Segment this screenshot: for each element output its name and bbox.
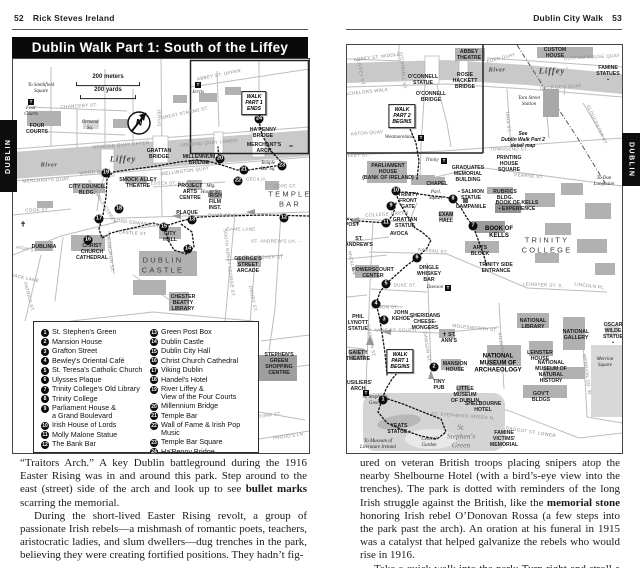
body-paragraph: “Traitors Arch.” A key Dublin battlegrou… [20,457,307,510]
legend-number-icon: 18 [150,376,158,384]
legend-number-icon: 6 [41,376,49,384]
legend-number-icon: 8 [41,395,49,403]
legend-number-icon: 12 [41,441,49,449]
body-paragraph: Take a quick walk into the park: Turn ri… [360,563,620,568]
legend-item-15: 15Dublin City Hall [150,347,254,356]
legend-label: Green Post Box [161,328,212,336]
legend-label: Ulysses Plaque [52,376,102,384]
legend-column-1: 1St. Stephen's Green2Mansion House3Graft… [41,328,145,448]
legend-label: Trinity College's Old Library [52,385,140,393]
legend-column-2: 13Green Post Box14Dublin Castle15Dublin … [150,328,254,448]
legend-label: The Bank Bar [52,440,96,448]
route-marker-1: 1 [379,396,388,405]
legend-item-10: 10Irish House of Lords [41,421,145,430]
body-paragraph: During the short-lived Easter Rising rev… [20,510,307,563]
legend-number-icon: 19 [150,386,158,394]
body-text-right: ured on veteran British troops placing s… [360,457,620,568]
legend-label: Handel's Hotel [161,376,208,384]
legend-item-23: 23Temple Bar Square [150,438,254,447]
legend-label: Trinity College [52,395,98,403]
header-rule [346,29,622,30]
legend-number-icon: 7 [41,386,49,394]
legend-item-24: 24Ha'Penny Bridge [150,448,254,455]
legend-number-icon: 13 [150,329,158,337]
legend-label: Viking Dublin [161,366,203,374]
legend-item-16: 16Christ Church Cathedral [150,357,254,366]
legend-item-12: 12The Bank Bar [41,440,145,449]
legend-number-icon: 3 [41,348,49,356]
legend-item-22: 22Wall of Fame & Irish Pop Music [150,421,254,437]
legend-item-14: 14Dublin Castle [150,338,254,347]
legend-label: Millennium Bridge [161,402,218,410]
route-marker-23: 23 [278,162,287,171]
running-header-left: 52 Rick Steves Ireland [14,13,115,23]
legend-item-13: 13Green Post Box [150,328,254,337]
page-53: Dublin City Walk 53 [320,0,640,568]
legend-item-2: 2Mansion House [41,338,145,347]
legend-number-icon: 9 [41,405,49,413]
legend-item-4: 4Bewley's Oriental Café [41,357,145,366]
section-tab-right: DUBLIN [622,133,640,186]
legend-item-9: 9Parliament House & a Grand Boulevard [41,404,145,420]
map-dublin-walk-part1: 1St. Stephen's Green2Mansion House3Graft… [12,58,310,454]
route-marker-11: 11 [382,219,391,228]
route-marker-16: 16 [84,236,93,245]
legend-item-7: 7Trinity College's Old Library [41,385,145,394]
legend-number-icon: 14 [150,338,158,346]
legend-number-icon: 5 [41,367,49,375]
legend-number-icon: 4 [41,357,49,365]
header-rule [12,29,308,30]
legend-item-3: 3Grafton Street [41,347,145,356]
route-marker-3: 3 [380,316,389,325]
legend-label: Temple Bar Square [161,438,223,446]
route-marker-8: 8 [449,195,458,204]
route-marker-7: 7 [469,222,478,231]
route-marker-17: 17 [95,215,104,224]
route-marker-13: 13 [188,216,197,225]
legend-label: Irish House of Lords [52,421,116,429]
route-marker-18: 18 [115,205,124,214]
legend-label: Mansion House [52,338,102,346]
legend-number-icon: 2 [41,338,49,346]
running-header-right: Dublin City Walk 53 [533,13,622,23]
legend-label: Ha'Penny Bridge [161,448,215,455]
book-spread: 52 Rick Steves Ireland Dublin Walk Part … [0,0,640,568]
legend-number-icon: 10 [41,422,49,430]
legend-number-icon: 21 [150,412,158,420]
legend-label: Bewley's Oriental Café [52,357,124,365]
legend-item-8: 8Trinity College [41,395,145,404]
route-marker-10: 10 [392,187,401,196]
legend-label: Grafton Street [52,347,97,355]
route-marker-15: 15 [160,223,169,232]
running-head-title: Dublin City Walk [533,13,603,23]
legend-number-icon: 23 [150,439,158,447]
map-legend: 1St. Stephen's Green2Mansion House3Graft… [33,321,259,453]
legend-item-1: 1St. Stephen's Green [41,328,145,337]
route-marker-12: 12 [280,214,289,223]
legend-item-11: 11Molly Malone Statue [41,431,145,440]
body-text-left: “Traitors Arch.” A key Dublin battlegrou… [20,457,307,563]
legend-number-icon: 24 [150,448,158,454]
legend-item-18: 18Handel's Hotel [150,376,254,385]
legend-number-icon: 22 [150,422,158,430]
route-marker-4: 4 [372,300,381,309]
route-marker-20: 20 [216,155,225,164]
body-paragraph: ured on veteran British troops placing s… [360,457,620,563]
page-number: 53 [612,13,622,23]
legend-number-icon: 15 [150,348,158,356]
legend-label: St. Teresa's Catholic Church [52,366,142,374]
legend-label: Molly Malone Statue [52,431,117,439]
route-marker-5: 5 [382,280,391,289]
legend-item-17: 17Viking Dublin [150,366,254,375]
legend-number-icon: 11 [41,431,49,439]
legend-label: Christ Church Cathedral [161,357,238,365]
legend-number-icon: 20 [150,403,158,411]
legend-label: River Liffey & View of the Four Courts [161,385,236,401]
route-marker-22: 22 [234,177,243,186]
legend-label: Wall of Fame & Irish Pop Music [161,421,254,437]
route-marker-2: 2 [430,363,439,372]
legend-item-19: 19River Liffey & View of the Four Courts [150,385,254,401]
legend-item-20: 20Millennium Bridge [150,402,254,411]
legend-item-6: 6Ulysses Plaque [41,376,145,385]
legend-label: Dublin City Hall [161,347,210,355]
route-marker-24: 24 [255,115,264,124]
legend-number-icon: 17 [150,367,158,375]
route-marker-14: 14 [184,245,193,254]
page-52: 52 Rick Steves Ireland Dublin Walk Part … [0,0,320,568]
map-title-bar: Dublin Walk Part 1: South of the Liffey [12,37,308,58]
legend-label: Temple Bar [161,412,197,420]
book-title: Rick Steves Ireland [33,13,115,23]
legend-item-5: 5St. Teresa's Catholic Church [41,366,145,375]
map-dublin-city-walk: ABBEY ST. MIDDLELIFFEY ST.O'CONNELL ST.A… [346,44,623,454]
legend-label: Dublin Castle [161,338,204,346]
legend-label: Parliament House & a Grand Boulevard [52,404,116,420]
route-marker-9: 9 [387,202,396,211]
section-tab-left: DUBLIN [0,120,17,192]
legend-label: St. Stephen's Green [52,328,117,336]
legend-item-21: 21Temple Bar [150,412,254,421]
map-title: Dublin Walk Part 1: South of the Liffey [32,37,288,58]
right-map-graphics [347,45,622,453]
route-marker-6: 6 [413,254,422,263]
legend-number-icon: 1 [41,329,49,337]
route-marker-19: 19 [102,169,111,178]
route-marker-21: 21 [240,166,249,175]
legend-number-icon: 16 [150,357,158,365]
page-number: 52 [14,13,24,23]
